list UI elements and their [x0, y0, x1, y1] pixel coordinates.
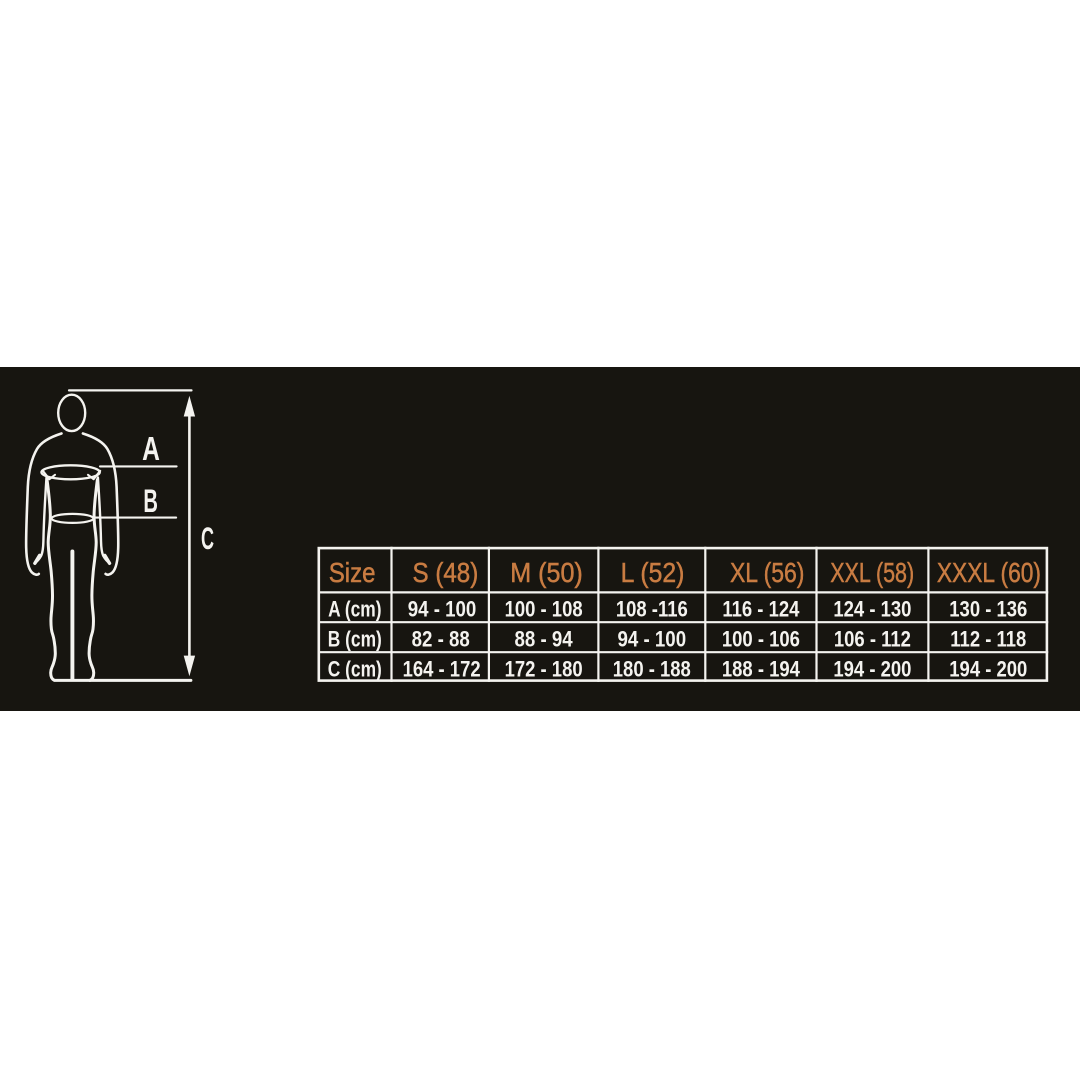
svg-text:88 - 94: 88 - 94: [515, 628, 574, 652]
svg-text:S (48): S (48): [413, 559, 479, 589]
svg-text:172 - 180: 172 - 180: [505, 658, 583, 682]
svg-text:194 - 200: 194 - 200: [949, 658, 1027, 682]
svg-text:106 - 112: 106 - 112: [834, 628, 911, 652]
svg-text:108 -116: 108 -116: [616, 598, 688, 622]
svg-text:A: A: [142, 430, 160, 468]
svg-text:82 - 88: 82 - 88: [412, 628, 470, 652]
svg-text:188 - 194: 188 - 194: [722, 658, 801, 682]
svg-text:94 - 100: 94 - 100: [618, 628, 687, 652]
svg-text:180 - 188: 180 - 188: [613, 658, 691, 682]
svg-text:XXL (58): XXL (58): [830, 559, 914, 589]
svg-text:130 - 136: 130 - 136: [949, 598, 1027, 622]
svg-text:116 - 124: 116 - 124: [722, 598, 800, 622]
svg-text:112 - 118: 112 - 118: [950, 628, 1026, 652]
svg-text:XXXL (60): XXXL (60): [937, 558, 1041, 588]
svg-text:C (cm): C (cm): [328, 658, 382, 682]
svg-text:Size: Size: [329, 559, 376, 589]
svg-text:100 - 106: 100 - 106: [722, 628, 800, 652]
svg-text:94 - 100: 94 - 100: [408, 598, 477, 622]
svg-text:164 - 172: 164 - 172: [403, 658, 481, 682]
svg-text:B: B: [143, 483, 158, 519]
svg-text:100 - 108: 100 - 108: [505, 598, 583, 622]
svg-text:M (50): M (50): [510, 557, 583, 588]
svg-text:124 - 130: 124 - 130: [833, 598, 911, 622]
svg-text:C: C: [201, 522, 214, 556]
svg-text:L (52): L (52): [621, 557, 685, 589]
svg-text:194 - 200: 194 - 200: [833, 658, 911, 682]
svg-text:XL (56): XL (56): [730, 558, 804, 588]
svg-text:A (cm): A (cm): [328, 598, 381, 622]
svg-text:B (cm): B (cm): [328, 628, 382, 652]
